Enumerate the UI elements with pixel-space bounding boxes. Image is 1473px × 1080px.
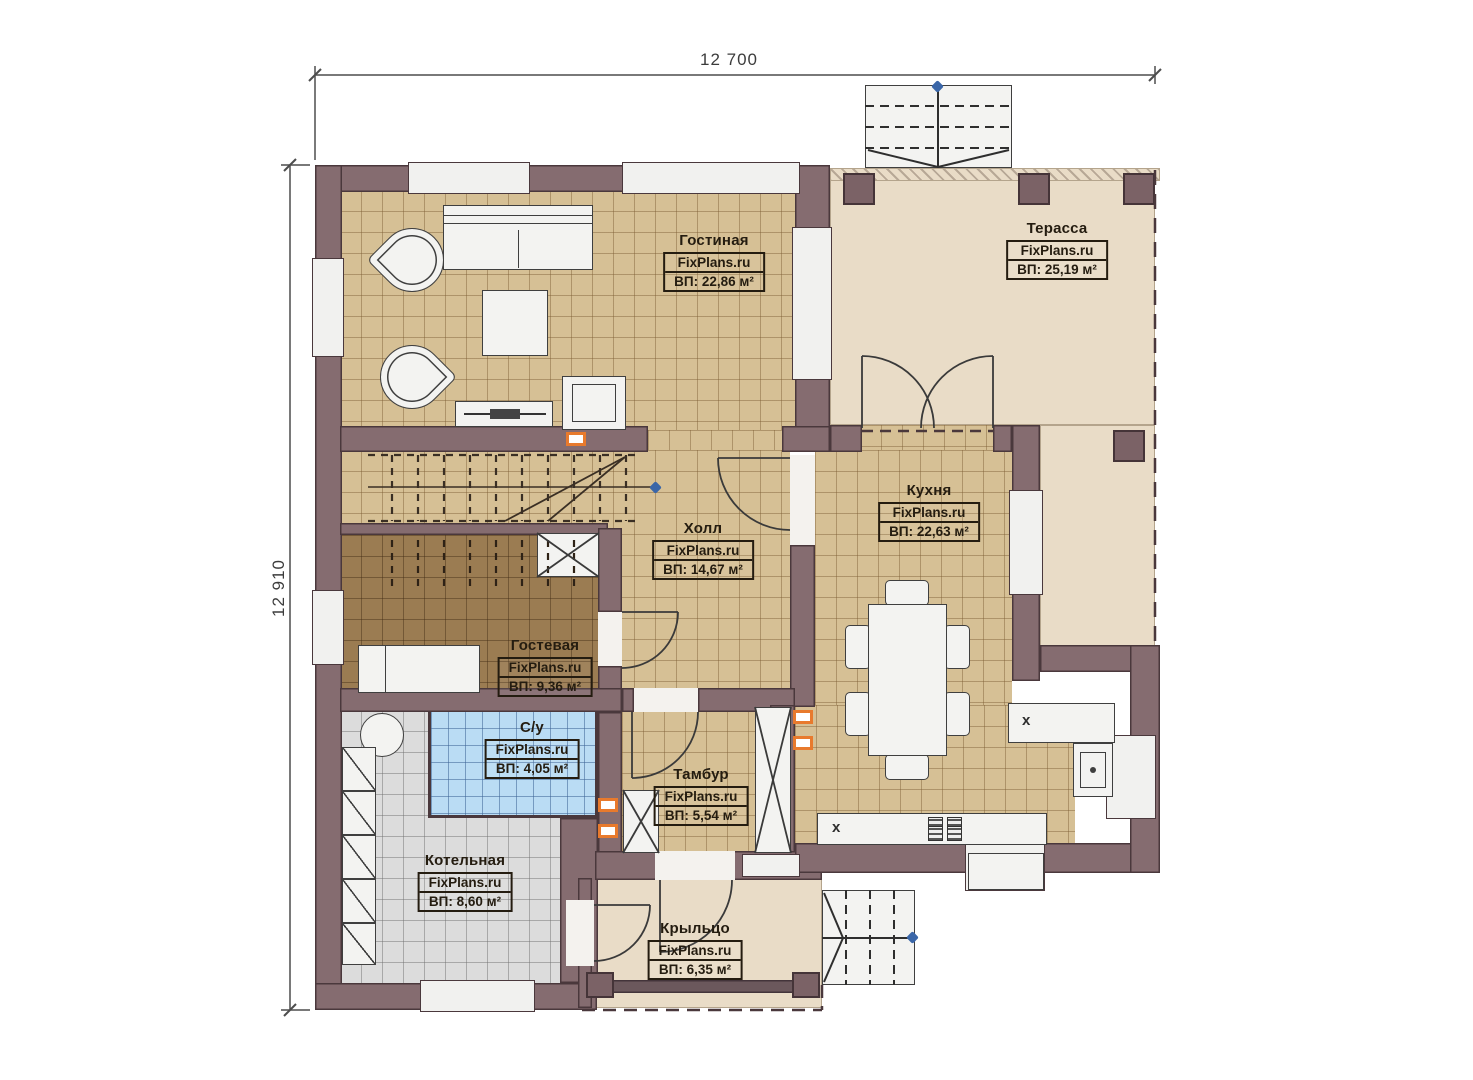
room-info-box: FixPlans.ru ВП: 14,67 м² <box>652 540 754 580</box>
watermark-text: FixPlans.ru <box>500 659 591 676</box>
label-tambour: Тамбур FixPlans.ru ВП: 5,54 м² <box>654 766 749 826</box>
room-area: ВП: 22,86 м² <box>665 271 763 290</box>
label-porch: Крыльцо FixPlans.ru ВП: 6,35 м² <box>648 920 743 980</box>
room-area: ВП: 14,67 м² <box>654 559 752 578</box>
room-area: ВП: 4,05 м² <box>487 758 578 777</box>
label-guest-room: Гостевая FixPlans.ru ВП: 9,36 м² <box>498 637 593 697</box>
guest-door-arc <box>622 612 678 668</box>
vent-living-wall <box>566 432 586 446</box>
room-area: ВП: 22,63 м² <box>880 521 978 540</box>
watermark-text: FixPlans.ru <box>487 741 578 758</box>
watermark-text: FixPlans.ru <box>880 504 978 521</box>
room-info-box: FixPlans.ru ВП: 25,19 м² <box>1006 240 1108 280</box>
room-info-box: FixPlans.ru ВП: 22,86 м² <box>663 252 765 292</box>
french-door-right-arc <box>921 356 993 428</box>
room-area: ВП: 6,35 м² <box>650 959 741 978</box>
watermark-text: FixPlans.ru <box>420 874 511 891</box>
room-name: С/у <box>485 719 580 736</box>
stair-break-line-1 <box>505 457 625 521</box>
room-info-box: FixPlans.ru ВП: 8,60 м² <box>418 872 513 912</box>
watermark-text: FixPlans.ru <box>665 254 763 271</box>
appliance-x-bottom: x <box>832 819 840 836</box>
porch-side-door-arc <box>594 905 650 961</box>
label-kitchen: Кухня FixPlans.ru ВП: 22,63 м² <box>878 482 980 542</box>
room-name: Гостиная <box>663 232 765 249</box>
vent-tambour-right-1 <box>793 710 813 724</box>
stair-treads-upper <box>368 455 640 521</box>
label-terrace: Терасса FixPlans.ru ВП: 25,19 м² <box>1006 220 1108 280</box>
dimension-left-group <box>281 159 310 1016</box>
vent-tambour-left-1 <box>598 798 618 812</box>
room-area: ВП: 25,19 м² <box>1008 259 1106 278</box>
vent-tambour-right-2 <box>793 736 813 750</box>
watermark-text: FixPlans.ru <box>654 542 752 559</box>
room-info-box: FixPlans.ru ВП: 5,54 м² <box>654 786 749 826</box>
room-info-box: FixPlans.ru ВП: 9,36 м² <box>498 657 593 697</box>
doors-group <box>594 356 993 961</box>
stair-treads-lower <box>392 540 574 586</box>
room-name: Котельная <box>418 852 513 869</box>
room-name: Холл <box>652 520 754 537</box>
room-name: Крыльцо <box>648 920 743 937</box>
label-boiler-room: Котельная FixPlans.ru ВП: 8,60 м² <box>418 852 513 912</box>
french-door-left-arc <box>862 356 934 428</box>
stair-break-line-2 <box>548 457 625 521</box>
watermark-text: FixPlans.ru <box>1008 242 1106 259</box>
label-living-room: Гостиная FixPlans.ru ВП: 22,86 м² <box>663 232 765 292</box>
room-name: Гостевая <box>498 637 593 654</box>
room-info-box: FixPlans.ru ВП: 22,63 м² <box>878 502 980 542</box>
room-name: Тамбур <box>654 766 749 783</box>
room-info-box: FixPlans.ru ВП: 4,05 м² <box>485 739 580 779</box>
terrace-stairs-detail <box>865 85 1012 168</box>
room-area: ВП: 9,36 м² <box>500 676 591 695</box>
dimension-top-group <box>309 66 1161 160</box>
label-bathroom: С/у FixPlans.ru ВП: 4,05 м² <box>485 719 580 779</box>
room-area: ВП: 5,54 м² <box>656 805 747 824</box>
appliance-x-right: x <box>1022 712 1030 729</box>
room-name: Терасса <box>1006 220 1108 237</box>
vent-tambour-left-2 <box>598 824 618 838</box>
label-hall: Холл FixPlans.ru ВП: 14,67 м² <box>652 520 754 580</box>
floor-plan: x x <box>0 0 1473 1080</box>
watermark-text: FixPlans.ru <box>650 942 741 959</box>
porch-stairs-detail <box>822 890 911 985</box>
room-name: Кухня <box>878 482 980 499</box>
watermark-text: FixPlans.ru <box>656 788 747 805</box>
room-info-box: FixPlans.ru ВП: 6,35 м² <box>648 940 743 980</box>
room-area: ВП: 8,60 м² <box>420 891 511 910</box>
